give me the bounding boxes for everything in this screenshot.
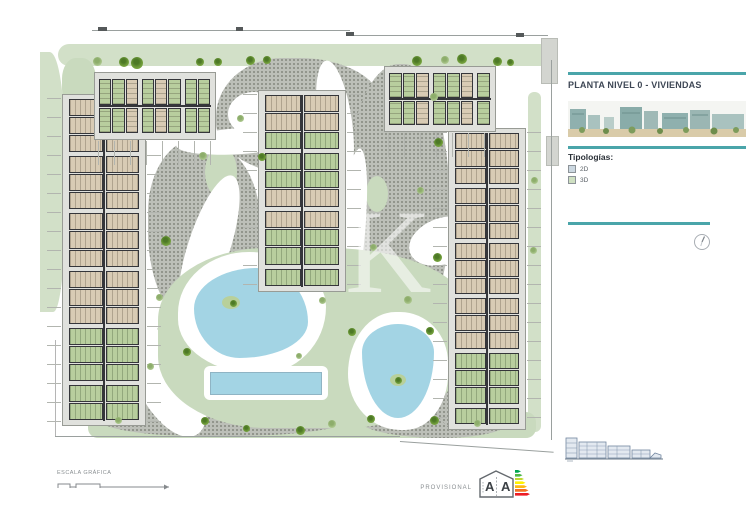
unit-cell xyxy=(304,153,340,170)
unit-cell xyxy=(265,171,301,188)
unit-cell xyxy=(461,73,474,98)
unit-cell xyxy=(112,79,124,105)
unit-cell xyxy=(489,150,520,166)
tree xyxy=(430,93,438,101)
unit-cell xyxy=(455,332,486,348)
tree xyxy=(115,417,122,424)
building-block-north-east xyxy=(384,66,496,132)
tree xyxy=(474,420,481,427)
unit-cell xyxy=(489,223,520,239)
unit-cell xyxy=(477,101,490,126)
unit-cell xyxy=(403,73,416,98)
unit-cell xyxy=(461,101,474,126)
unit-cell xyxy=(265,247,301,264)
unit-cell xyxy=(106,213,140,230)
unit-cell xyxy=(265,269,301,286)
energy-arrow xyxy=(515,474,523,477)
boundary-line xyxy=(551,60,552,440)
tree xyxy=(417,187,424,194)
unit-cell xyxy=(489,387,520,403)
boundary-marker xyxy=(516,33,524,37)
unit-cell xyxy=(69,346,103,363)
unit-cell xyxy=(489,205,520,221)
legend-swatch-3d xyxy=(568,176,576,184)
tree xyxy=(328,420,336,428)
tree xyxy=(119,57,129,67)
tree xyxy=(237,115,244,122)
unit-cell xyxy=(106,289,140,306)
unit-cell xyxy=(69,213,103,230)
tree xyxy=(161,236,171,246)
party-wall xyxy=(301,95,303,287)
boundary-marker xyxy=(98,27,107,31)
tree xyxy=(530,247,537,254)
party-wall xyxy=(389,98,491,100)
tree xyxy=(131,57,143,69)
tree xyxy=(348,328,356,336)
typologies-title: Tipologías: xyxy=(568,152,613,162)
unit-cell xyxy=(69,174,103,191)
unit-cell xyxy=(168,108,180,134)
unit-cell xyxy=(106,307,140,324)
unit-cell xyxy=(455,223,486,239)
unit-cell xyxy=(389,73,402,98)
unit-cell xyxy=(489,370,520,386)
unit-cell xyxy=(455,408,486,424)
unit-cell xyxy=(69,364,103,381)
unit-cell xyxy=(142,79,154,105)
unit-cell xyxy=(489,298,520,314)
scale-bar xyxy=(57,479,187,493)
unit-cell xyxy=(168,79,180,105)
tree xyxy=(263,56,271,64)
unit-cell xyxy=(99,108,111,134)
unit-cell xyxy=(416,101,429,126)
unit-cell xyxy=(455,188,486,204)
unit-cell xyxy=(69,403,103,420)
tree xyxy=(370,244,377,251)
panel-divider-bottom xyxy=(568,222,710,225)
unit-cell xyxy=(69,231,103,248)
panel-divider-middle xyxy=(568,146,746,149)
unit-cell xyxy=(455,278,486,294)
legend-item-3d: 3D xyxy=(568,176,588,184)
tree xyxy=(404,296,412,304)
unit-cell xyxy=(265,211,301,228)
tree xyxy=(531,177,538,184)
unit-cell xyxy=(403,101,416,126)
unit-cell xyxy=(304,113,340,130)
unit-cell xyxy=(112,108,124,134)
unit-cell xyxy=(265,229,301,246)
building-block-east xyxy=(448,128,526,430)
unit-cell xyxy=(455,370,486,386)
unit-cell xyxy=(477,73,490,98)
unit-cell xyxy=(185,108,197,134)
tree xyxy=(430,416,439,425)
tree xyxy=(246,56,255,65)
building-block-center xyxy=(258,90,346,292)
tree xyxy=(507,59,514,66)
unit-cell xyxy=(265,189,301,206)
unit-cell xyxy=(69,385,103,402)
page: { "colors": { "accent": "#4aa5aa", "grav… xyxy=(0,0,756,528)
unit-cell xyxy=(447,73,460,98)
energy-rating-arrows xyxy=(515,470,529,496)
unit-cell xyxy=(455,168,486,184)
energy-house-icon xyxy=(477,468,517,500)
unit-cell xyxy=(106,250,140,267)
unit-cell xyxy=(304,171,340,188)
tree xyxy=(412,56,422,66)
tree xyxy=(199,152,207,160)
energy-arrow xyxy=(515,489,529,492)
unit-cell xyxy=(198,108,210,134)
elevation-drawing xyxy=(565,434,665,462)
boundary-line xyxy=(55,340,56,436)
terrace-lines xyxy=(47,98,61,422)
provisional-label: PROVISIONAL xyxy=(400,485,472,491)
tree xyxy=(196,58,204,66)
tree xyxy=(433,253,442,262)
unit-cell xyxy=(489,260,520,276)
energy-certificate-badge: A A xyxy=(477,468,529,500)
tree xyxy=(183,348,191,356)
tree xyxy=(201,417,209,425)
legend-label-3d: 3D xyxy=(580,177,588,184)
unit-cell xyxy=(69,289,103,306)
tree xyxy=(426,327,434,335)
party-wall xyxy=(99,105,211,107)
unit-cell xyxy=(265,132,301,149)
unit-cell xyxy=(126,108,138,134)
energy-arrow xyxy=(515,478,524,481)
unit-cell xyxy=(106,231,140,248)
terrace-lines xyxy=(98,141,212,165)
unit-cell xyxy=(106,346,140,363)
unit-cell xyxy=(142,108,154,134)
tree xyxy=(93,57,102,66)
tree xyxy=(493,57,502,66)
unit-cell xyxy=(304,132,340,149)
unit-cell xyxy=(304,95,340,112)
building-block-north-west xyxy=(94,72,216,140)
compass-icon xyxy=(693,233,711,251)
unit-cell xyxy=(304,211,340,228)
scale-label: ESCALA GRÁFICA xyxy=(57,470,111,476)
tree xyxy=(319,297,326,304)
page-title: PLANTA NIVEL 0 - VIVIENDAS xyxy=(568,80,702,90)
unit-cell xyxy=(155,108,167,134)
tree xyxy=(147,363,154,370)
legend-item-2d: 2D xyxy=(568,165,588,173)
tree xyxy=(457,54,467,64)
unit-cell xyxy=(447,101,460,126)
panel-divider-top xyxy=(568,72,746,75)
tree xyxy=(214,58,222,66)
unit-cell xyxy=(99,79,111,105)
boundary-marker xyxy=(236,27,243,31)
unit-cell xyxy=(455,260,486,276)
energy-letter-right: A xyxy=(501,479,510,494)
tree xyxy=(395,377,402,384)
unit-cell xyxy=(489,315,520,331)
unit-cell xyxy=(106,328,140,345)
tree xyxy=(434,138,443,147)
unit-cell xyxy=(155,79,167,105)
unit-cell xyxy=(489,133,520,149)
unit-cell xyxy=(69,250,103,267)
unit-cell xyxy=(489,332,520,348)
unit-cell xyxy=(489,278,520,294)
unit-cell xyxy=(265,95,301,112)
unit-cell xyxy=(126,79,138,105)
unit-cell xyxy=(106,271,140,288)
unit-cell xyxy=(265,153,301,170)
terrace-lines xyxy=(433,132,447,426)
unit-cell xyxy=(106,403,140,420)
unit-cell xyxy=(69,192,103,209)
tree xyxy=(230,300,237,307)
terrace-lines xyxy=(347,94,361,288)
unit-cell xyxy=(304,247,340,264)
unit-cell xyxy=(304,269,340,286)
unit-cell xyxy=(185,79,197,105)
unit-cell xyxy=(455,315,486,331)
energy-arrow xyxy=(515,470,521,473)
project-render-image xyxy=(568,101,746,137)
tree xyxy=(367,415,375,423)
unit-cell xyxy=(69,307,103,324)
legend-swatch-2d xyxy=(568,165,576,173)
party-wall xyxy=(486,133,488,425)
energy-arrow xyxy=(515,485,527,488)
unit-cell xyxy=(69,328,103,345)
unit-cell xyxy=(106,192,140,209)
unit-cell xyxy=(489,408,520,424)
energy-letter-left: A xyxy=(485,479,494,494)
unit-cell xyxy=(416,73,429,98)
tree xyxy=(296,353,302,359)
unit-cell xyxy=(106,174,140,191)
unit-cell xyxy=(489,243,520,259)
tree xyxy=(243,425,250,432)
unit-cell xyxy=(304,189,340,206)
unit-cell xyxy=(489,168,520,184)
boundary-line xyxy=(92,30,350,31)
boundary-marker xyxy=(346,32,354,36)
unit-cell xyxy=(198,79,210,105)
energy-arrow xyxy=(515,493,530,496)
unit-cell xyxy=(455,243,486,259)
unit-cell xyxy=(455,205,486,221)
unit-cell xyxy=(106,364,140,381)
unit-cell xyxy=(455,353,486,369)
tree xyxy=(441,56,449,64)
unit-cell xyxy=(489,188,520,204)
unit-cell xyxy=(433,101,446,126)
unit-cell xyxy=(69,271,103,288)
energy-arrow xyxy=(515,481,526,484)
unit-cell xyxy=(489,353,520,369)
unit-cell xyxy=(455,387,486,403)
unit-cell xyxy=(455,298,486,314)
unit-cell xyxy=(304,229,340,246)
legend-label-2d: 2D xyxy=(580,166,588,173)
boundary-line xyxy=(55,436,400,437)
terrace-lines xyxy=(243,94,257,288)
unit-cell xyxy=(106,385,140,402)
unit-cell xyxy=(389,101,402,126)
tree xyxy=(156,294,163,301)
tree xyxy=(258,153,266,161)
tree xyxy=(296,426,305,435)
unit-cell xyxy=(265,113,301,130)
